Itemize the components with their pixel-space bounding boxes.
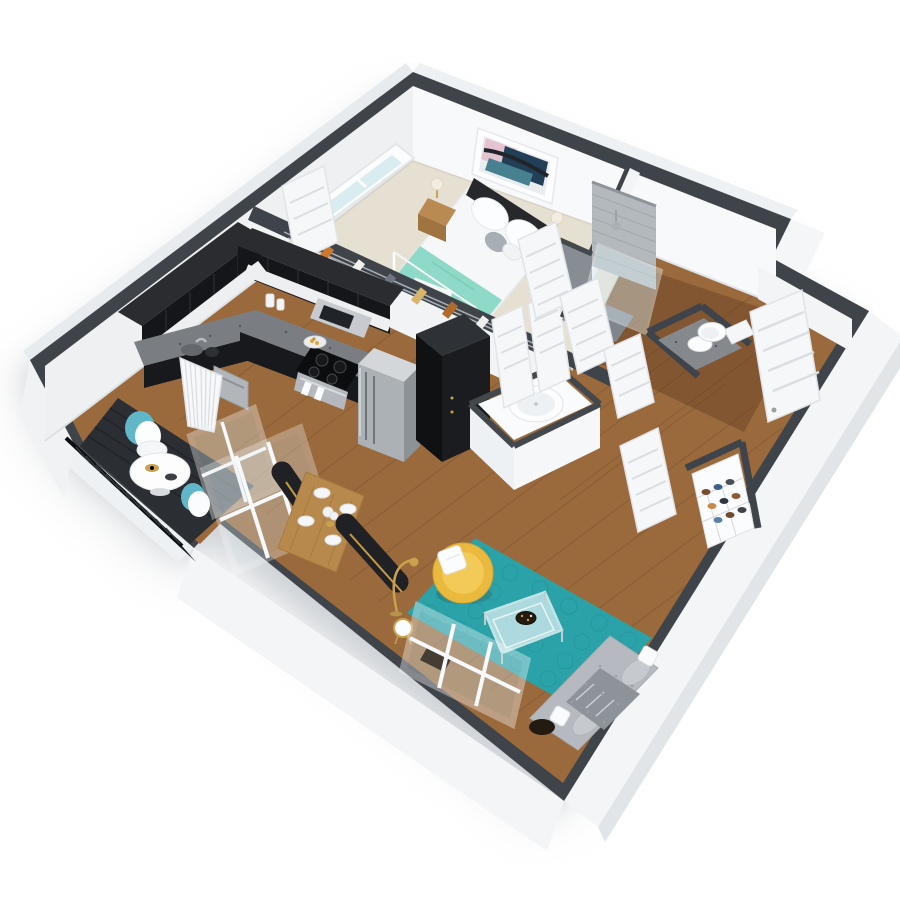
shoe bbox=[720, 498, 729, 504]
granite-speck bbox=[239, 325, 241, 327]
burner bbox=[327, 374, 337, 384]
tuft bbox=[615, 675, 618, 678]
place-setting bbox=[298, 516, 314, 526]
accent-chair bbox=[433, 543, 493, 604]
burner bbox=[334, 361, 346, 373]
wardrobe-handle bbox=[451, 411, 454, 414]
table-top bbox=[130, 453, 190, 491]
kettle bbox=[205, 347, 219, 357]
place-setting bbox=[340, 504, 356, 514]
food bbox=[315, 341, 319, 345]
bowl-dot bbox=[527, 619, 529, 621]
jar bbox=[266, 294, 274, 307]
bowl-dot bbox=[521, 615, 523, 617]
tuft bbox=[603, 721, 606, 724]
lamp-base bbox=[390, 612, 402, 617]
granite-speck bbox=[285, 331, 287, 333]
shoe bbox=[708, 503, 717, 509]
door-handle bbox=[772, 408, 777, 413]
tuft bbox=[585, 683, 588, 686]
floor-plan-stage bbox=[0, 0, 900, 900]
plate-center bbox=[150, 466, 154, 470]
granite-speck bbox=[675, 341, 677, 343]
shoe bbox=[714, 484, 723, 490]
shoe bbox=[702, 489, 711, 495]
tuft bbox=[587, 711, 590, 714]
decor-bowl bbox=[516, 612, 536, 625]
refrigerator bbox=[358, 348, 420, 462]
lamp-head bbox=[410, 558, 419, 567]
place-setting bbox=[325, 535, 341, 545]
tuft bbox=[601, 693, 604, 696]
floor-plan-render bbox=[0, 0, 900, 900]
food-plate bbox=[304, 336, 326, 348]
bowl-dot bbox=[530, 615, 532, 617]
toilet-seat bbox=[701, 327, 719, 339]
shoe bbox=[726, 512, 735, 518]
burner bbox=[309, 367, 319, 377]
food bbox=[312, 337, 315, 340]
water-heater-cap bbox=[534, 402, 538, 406]
wardrobe-side bbox=[416, 334, 442, 462]
centerpiece-flowers bbox=[330, 512, 338, 520]
lamp-shade bbox=[431, 178, 443, 190]
granite-speck bbox=[179, 343, 181, 345]
tuft bbox=[599, 665, 602, 668]
table-base bbox=[150, 488, 170, 496]
jar bbox=[277, 299, 284, 310]
tuft bbox=[571, 701, 574, 704]
granite-speck bbox=[715, 345, 717, 347]
floor-bowl bbox=[529, 719, 555, 735]
burner bbox=[316, 354, 328, 366]
shoe bbox=[732, 493, 741, 499]
granite-speck bbox=[329, 347, 331, 349]
shoe bbox=[714, 517, 723, 523]
tuft bbox=[617, 703, 620, 706]
kitchen-sink bbox=[181, 344, 203, 356]
shoe bbox=[738, 507, 747, 513]
tuft bbox=[631, 685, 634, 688]
centerpiece-vase bbox=[326, 521, 334, 527]
lamp-shade bbox=[551, 212, 563, 224]
granite-speck bbox=[209, 335, 211, 337]
place-setting bbox=[314, 488, 330, 498]
wardrobe-handle bbox=[451, 397, 454, 400]
shoe bbox=[726, 479, 735, 485]
shower-head bbox=[612, 222, 621, 231]
plate-dark bbox=[165, 474, 177, 481]
